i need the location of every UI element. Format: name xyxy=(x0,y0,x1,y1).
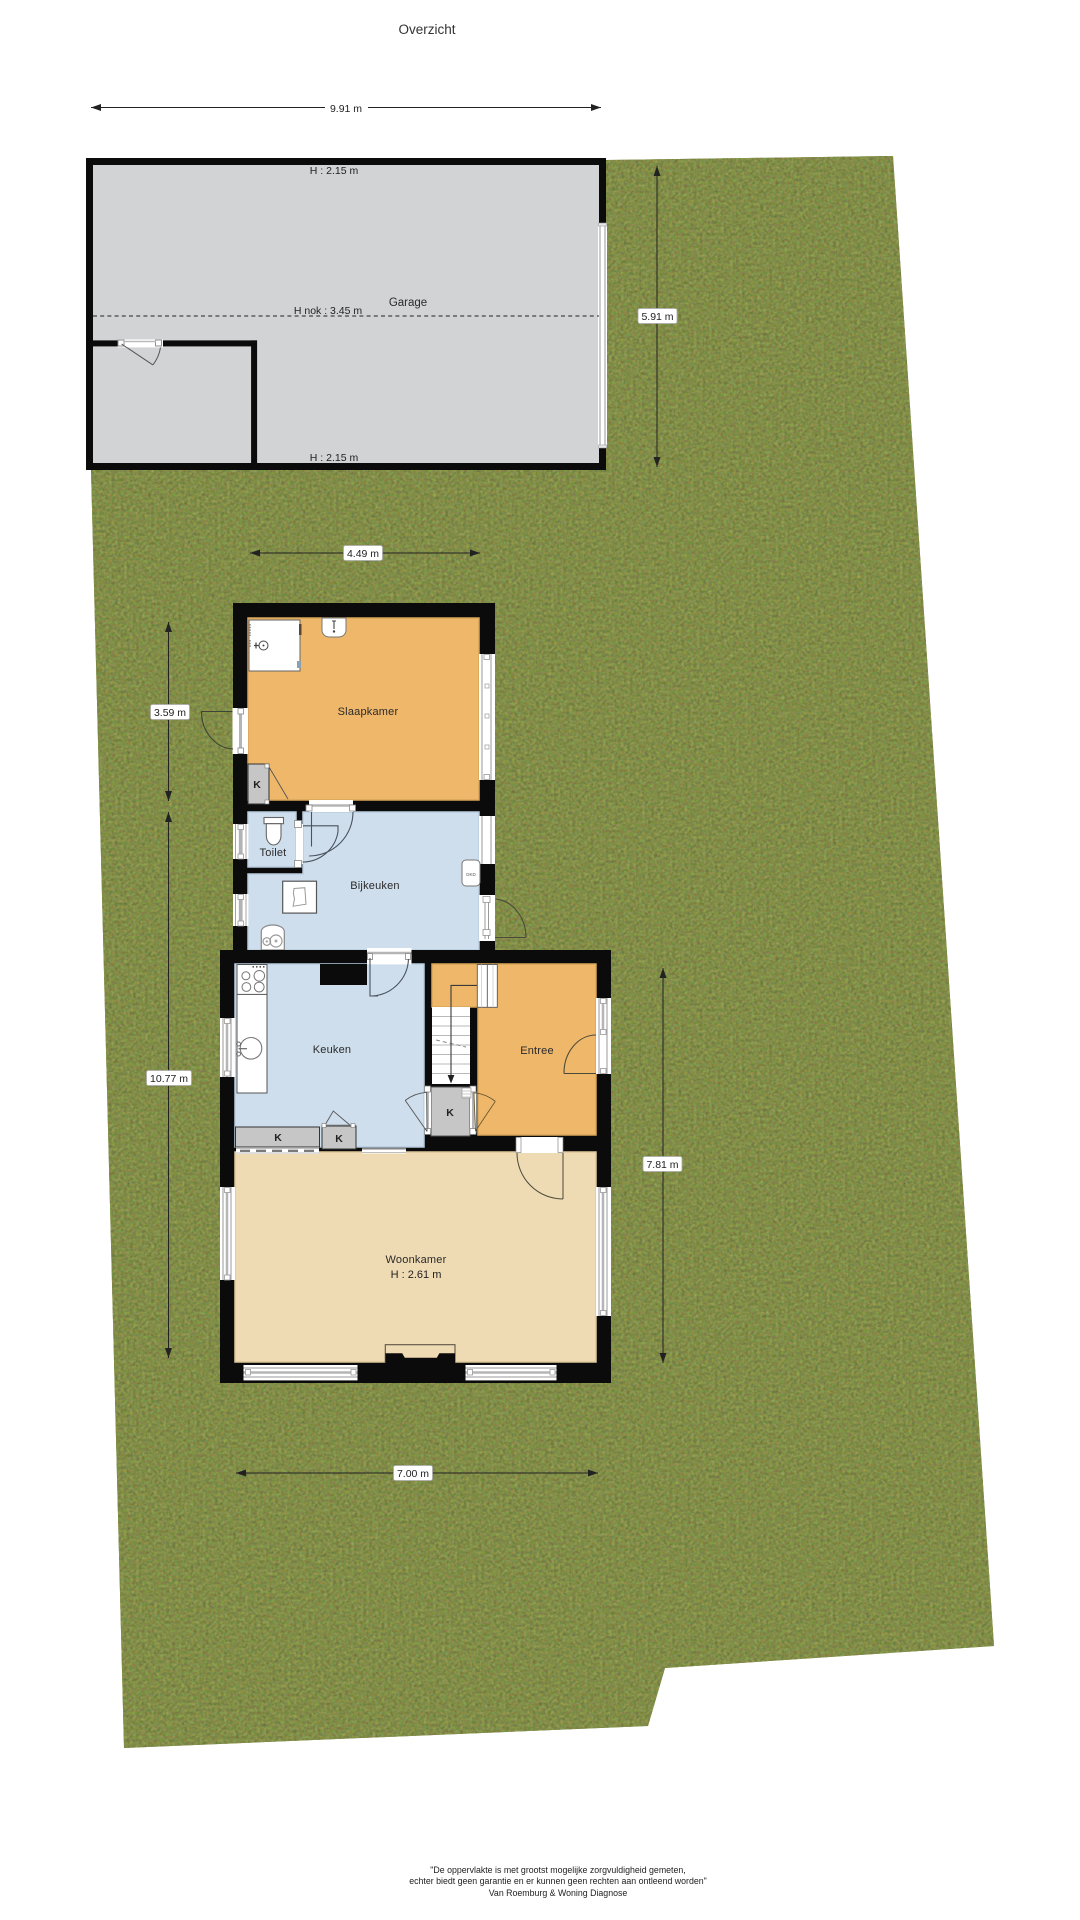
svg-text:7.81 m: 7.81 m xyxy=(646,1159,678,1171)
svg-text:H : 2.15 m: H : 2.15 m xyxy=(310,452,359,464)
svg-text:5.91 m: 5.91 m xyxy=(641,311,673,323)
svg-text:7.00 m: 7.00 m xyxy=(397,1468,429,1480)
svg-text:Van Roemburg & Woning Diagnose: Van Roemburg & Woning Diagnose xyxy=(489,1888,628,1898)
svg-text:echter biedt geen garantie en: echter biedt geen garantie en er kunnen … xyxy=(409,1876,707,1886)
svg-text:"De oppervlakte is met grootst: "De oppervlakte is met grootst mogelijke… xyxy=(430,1865,685,1875)
svg-text:3.59 m: 3.59 m xyxy=(154,707,186,719)
svg-text:K: K xyxy=(335,1133,343,1145)
svg-text:Keuken: Keuken xyxy=(313,1044,352,1056)
svg-text:K: K xyxy=(253,779,261,791)
svg-text:Garage: Garage xyxy=(389,297,427,309)
svg-text:Toilet: Toilet xyxy=(260,847,287,859)
svg-text:9.91 m: 9.91 m xyxy=(330,103,362,115)
svg-text:10.77 m: 10.77 m xyxy=(150,1073,188,1085)
svg-text:Bijkeuken: Bijkeuken xyxy=(350,880,400,892)
svg-text:Entree: Entree xyxy=(520,1045,554,1057)
svg-text:Overzicht: Overzicht xyxy=(398,22,455,37)
svg-text:K: K xyxy=(446,1107,454,1119)
svg-text:DKD: DKD xyxy=(466,872,476,877)
svg-text:Woonkamer: Woonkamer xyxy=(386,1254,447,1266)
svg-text:4.49 m: 4.49 m xyxy=(347,548,379,560)
svg-text:H : 2.61 m: H : 2.61 m xyxy=(391,1269,442,1281)
svg-text:H nok : 3.45 m: H nok : 3.45 m xyxy=(294,305,363,317)
svg-text:K: K xyxy=(274,1132,282,1144)
svg-text:H : 2.15 m: H : 2.15 m xyxy=(310,165,359,177)
svg-text:Slaapkamer: Slaapkamer xyxy=(338,706,399,718)
